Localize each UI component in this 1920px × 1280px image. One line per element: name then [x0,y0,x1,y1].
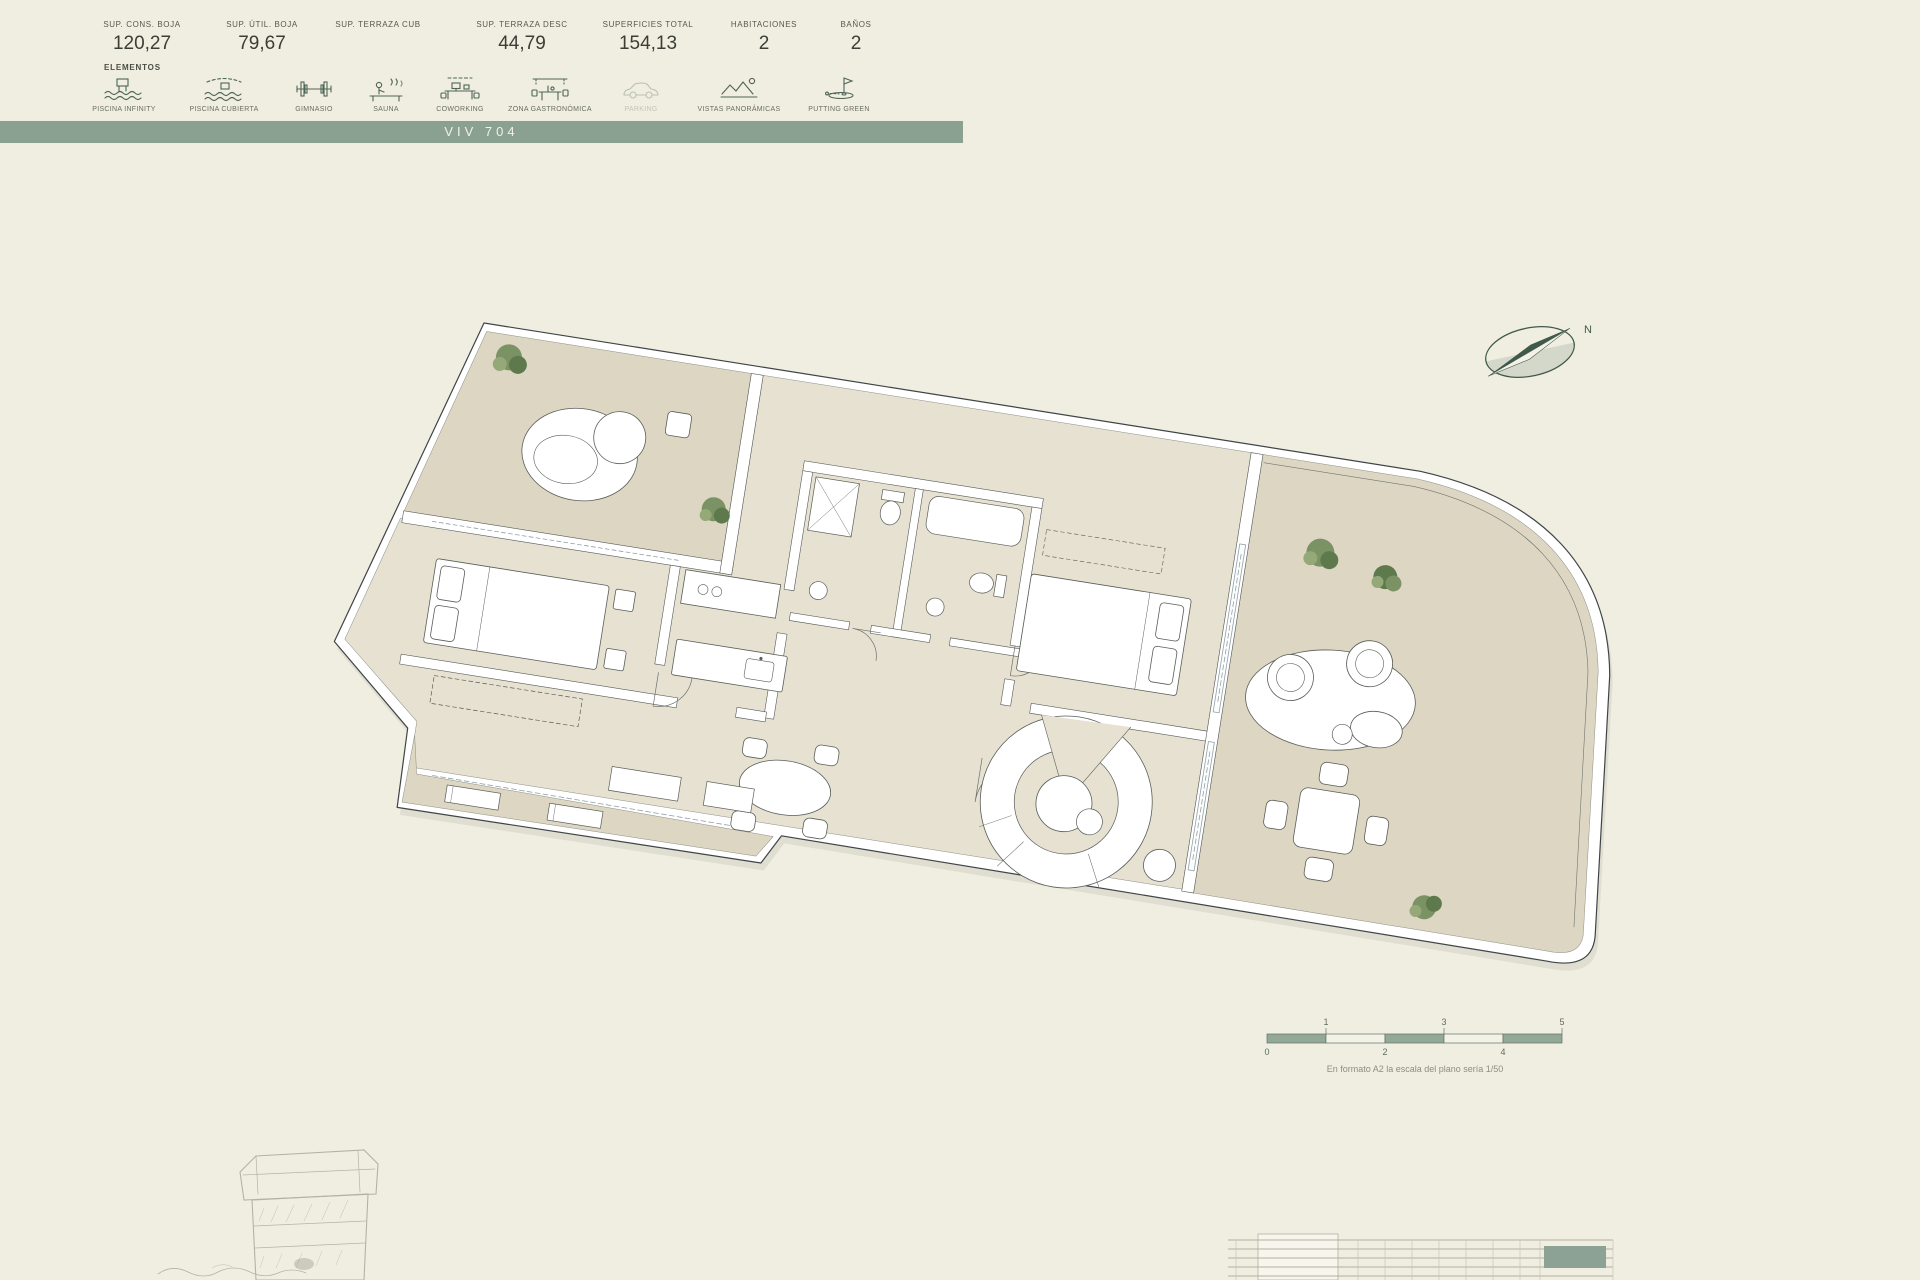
scale-caption: En formato A2 la escala del plano sería … [1327,1064,1504,1074]
side-table [665,411,692,438]
tower-sketch [158,1150,378,1280]
floor-plan [309,308,1667,1004]
floor-plan-page: { "meta": { "background": "#f0eee1", "ac… [0,0,1920,1280]
building-elevation [1228,1234,1613,1280]
scale-tick: 3 [1441,1017,1446,1027]
scale-tick: 4 [1500,1047,1505,1057]
scale-tick: 0 [1264,1047,1269,1057]
compass-north-label: N [1584,324,1592,336]
highlighted-floor-marker [1544,1246,1606,1268]
compass: N [1480,319,1592,385]
scale-bar: 1 3 5 0 2 4 En formato A2 la escala del … [1264,1017,1564,1074]
terrace-table [1292,787,1361,856]
scale-tick: 1 [1323,1017,1328,1027]
scale-tick: 2 [1382,1047,1387,1057]
artwork-canvas: N 1 3 5 0 2 4 En formato A2 la escala de… [0,0,1920,1280]
scale-tick: 5 [1559,1017,1564,1027]
